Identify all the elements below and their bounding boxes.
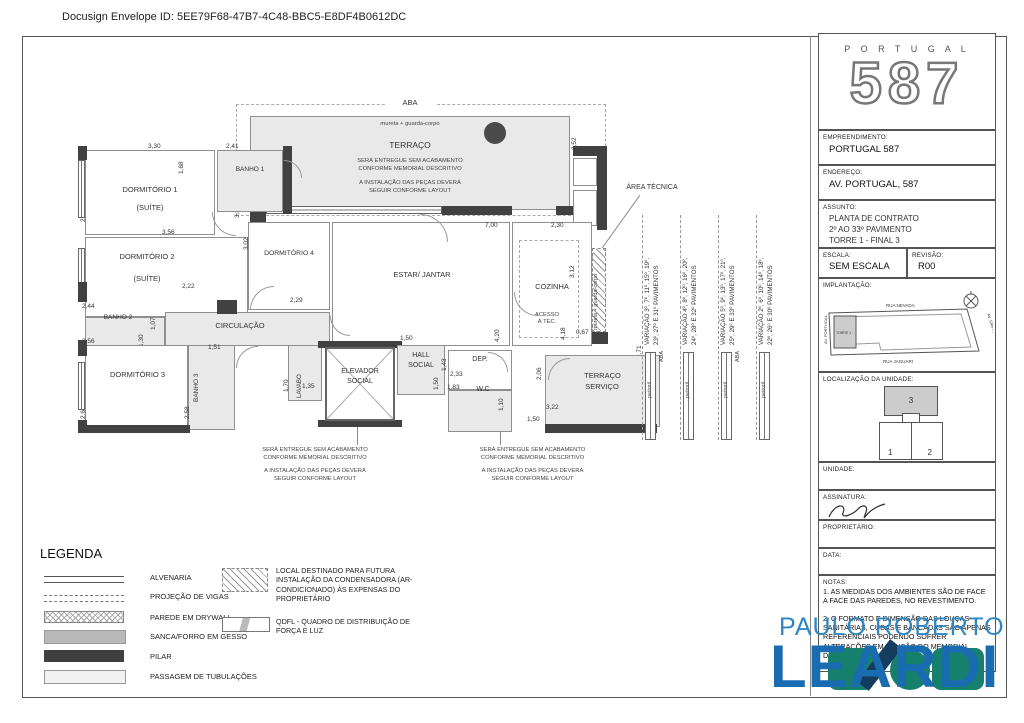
dim: 1,35	[302, 383, 315, 390]
plan-note: SERÁ ENTREGUE SEM ACABAMENTO	[240, 447, 390, 455]
legend-item: PAREDE EM DRYWALL	[150, 613, 232, 622]
endereco-box: ENDEREÇO: AV. PORTUGAL, 587	[818, 165, 996, 200]
field-label: IMPLANTAÇÃO:	[823, 282, 995, 289]
guide-line	[642, 215, 643, 440]
unit-3-block: 3	[884, 386, 938, 416]
wall-segment	[217, 300, 237, 314]
dorm1-suite-label: (SUÍTE)	[100, 203, 200, 212]
guide-line	[756, 215, 757, 440]
field-label: UNIDADE:	[823, 466, 995, 473]
wall-segment	[545, 424, 657, 433]
wall-segment	[78, 146, 87, 160]
dim: 0,67	[576, 329, 589, 336]
estar-label: ESTAR/ JANTAR	[372, 270, 472, 279]
legend-symbol-alvenaria	[44, 576, 124, 583]
area-tecnica-label: ÁREA TÉCNICA	[616, 184, 688, 192]
shaft	[573, 190, 597, 226]
aba-vertical-label: ABA	[735, 342, 741, 362]
field-value: AV. PORTUGAL, 587	[829, 179, 995, 190]
dim: 3,12	[569, 254, 576, 278]
legend-extra-item: LOCAL DESTINADO PARA FUTURA INSTALAÇÃO D…	[276, 566, 416, 603]
brand-number: 587	[819, 54, 995, 115]
dim: 1,83	[447, 384, 460, 391]
field-value: 2º AO 33º PAVIMENTO	[829, 225, 995, 234]
plan-note: SERÁ ENTREGUE SEM ACABAMENTO	[455, 447, 610, 455]
guide-line	[718, 215, 719, 440]
elevador-label: ELEVADOR	[328, 368, 392, 376]
data-box: DATA:	[818, 548, 996, 575]
variacao-label: 23º, 27º E 31º PAVIMENTOS	[654, 215, 660, 345]
dorm2-suite-label: (SUÍTE)	[97, 274, 197, 283]
plan-note: CONFORME MEMORIAL DESCRITIVO	[455, 455, 610, 463]
dim: 4,20	[494, 318, 501, 342]
proprietario-box: PROPRIETÁRIO:	[818, 520, 996, 548]
dim: 1,50	[433, 366, 440, 390]
signature	[827, 501, 897, 521]
field-value: R00	[918, 261, 995, 272]
variacao-label: VARIAÇÃO 4º, 8º, 12º, 16º, 20º,	[683, 215, 689, 345]
unit-divider	[911, 423, 912, 459]
watermark-line2: LEARDI	[770, 632, 999, 701]
legend-item: ALVENARIA	[150, 573, 192, 582]
banho3-label: BANHO 3	[193, 356, 201, 420]
peitoril-label: peitoril	[647, 368, 653, 398]
document-page: Docusign Envelope ID: 5EE79F68-47B7-4C48…	[0, 0, 1024, 723]
assinatura-box: ASSINATURA:	[818, 490, 996, 520]
cozinha-label: COZINHA	[522, 282, 582, 291]
wall-segment	[78, 282, 87, 302]
leader-line	[357, 427, 358, 445]
variacao-label: VARIAÇÃO 2º, 6º, 10º, 14º, 18º,	[759, 215, 765, 345]
terraco-servico-label: TERRAÇO	[570, 371, 635, 380]
wall-segment	[283, 146, 292, 214]
plan-note: SEGUIR CONFORME LAYOUT	[455, 476, 610, 484]
plan-note: A INSTALAÇÃO DAS PEÇAS DEVERÁ	[455, 468, 610, 476]
dim: 2,22	[182, 283, 195, 290]
field-label: LOCALIZAÇÃO DA UNIDADE:	[823, 376, 995, 383]
legend-symbol-pilar	[44, 650, 124, 662]
logo-box: P O R T U G A L 587	[818, 33, 996, 130]
terraco-note-line: SERÁ ENTREGUE SEM ACABAMENTO	[320, 158, 500, 166]
peitoril-label: peitoril	[723, 368, 729, 398]
street-left-label: AV. PORTUGAL	[823, 314, 828, 344]
legend-symbol-qdfl	[222, 617, 270, 632]
legend-item: PASSAGEM DE TUBULAÇÕES	[150, 672, 257, 681]
dim: 3,56	[162, 229, 175, 236]
circulacao-label: CIRCULAÇÃO	[185, 321, 295, 330]
legend-item: PROJEÇÃO DE VIGAS	[150, 592, 229, 601]
units-1-2-block: 1 2	[879, 422, 943, 460]
hall-label: HALL	[399, 352, 443, 360]
dim: 2,44	[82, 303, 95, 310]
wall-segment	[592, 332, 608, 344]
dim: 7,00	[485, 222, 498, 229]
title-block-divider	[810, 36, 811, 696]
empreendimento-box: EMPREENDIMENTO: PORTUGAL 587	[818, 130, 996, 165]
window-strip	[266, 206, 442, 214]
variacao-label: VARIAÇÃO 5º, 9º, 13º, 17º, 21º,	[721, 215, 727, 345]
dim: 2,33	[450, 371, 463, 378]
field-label: NOTAS:	[823, 579, 995, 586]
tower-label: TORRE 1	[836, 331, 851, 335]
revisao-box: REVISÃO: R00	[907, 248, 996, 278]
dorm2-label: DORMITÓRIO 2	[92, 252, 202, 261]
legend-symbol-sanca	[44, 630, 126, 644]
field-label: DATA:	[823, 552, 995, 559]
variacao-label: 22º, 26º E 30º PAVIMENTOS	[768, 215, 774, 345]
terraco-label: TERRAÇO	[355, 140, 465, 150]
field-label: ASSUNTO:	[823, 204, 995, 211]
unidade-box: UNIDADE:	[818, 462, 996, 490]
wall-segment	[78, 340, 87, 356]
terraco-note-line: A INSTALAÇÃO DAS PEÇAS DEVERÁ	[320, 180, 500, 188]
field-label: ENDEREÇO:	[823, 169, 995, 176]
dim: 1,07	[150, 308, 157, 330]
dim: 1,50	[527, 416, 540, 423]
room-lavabo	[288, 345, 322, 401]
legend-extra-item: QDFL - QUADRO DE DISTRIBUIÇÃO DE FORÇA E…	[276, 617, 426, 636]
docusign-envelope-id: Docusign Envelope ID: 5EE79F68-47B7-4C48…	[62, 11, 406, 23]
escala-box: ESCALA: SEM ESCALA	[818, 248, 907, 278]
wall-segment	[442, 206, 512, 215]
plan-note: CONFORME MEMORIAL DESCRITIVO	[240, 455, 390, 463]
site-plan: TORRE 1 RUA NEVADA RUA JAGUARI AV. PORTU…	[821, 289, 993, 367]
field-value: SEM ESCALA	[829, 261, 906, 272]
wall-segment	[85, 425, 190, 433]
dim: 3,30	[148, 143, 161, 150]
assunto-box: ASSUNTO: PLANTA DE CONTRATO 2º AO 33º PA…	[818, 200, 996, 248]
guide-line	[680, 215, 681, 440]
dim: 1,68	[178, 152, 185, 174]
field-value: PLANTA DE CONTRATO	[829, 214, 995, 223]
aba-label: ABA	[385, 98, 435, 107]
field-label: ASSINATURA:	[823, 494, 995, 501]
dim: 1,70	[283, 368, 290, 392]
dim: 1,30	[138, 325, 145, 347]
legend-item: PILAR	[150, 652, 172, 661]
field-label: REVISÃO:	[912, 252, 995, 259]
aba-vertical-label: ABA	[659, 342, 665, 362]
terraco-servico-label: SERVIÇO	[572, 382, 632, 391]
window-strip	[78, 362, 85, 410]
variacao-label: 24º, 28º E 32º PAVIMENTOS	[692, 215, 698, 345]
field-label: EMPREENDIMENTO:	[823, 134, 995, 141]
lavabo-label: LAVABO	[296, 352, 303, 398]
dim: 2,06	[536, 356, 543, 380]
dim: 1,43	[441, 349, 448, 371]
field-value: TORRE 1 - FINAL 3	[829, 236, 995, 245]
dim: 3,02	[243, 226, 250, 250]
dim: 2,58	[184, 395, 191, 419]
dorm4-label: DORMITÓRIO 4	[250, 250, 328, 258]
legend-item: SANCA/FORRO EM GESSO	[150, 632, 247, 641]
leader-line	[500, 432, 501, 445]
round-column	[484, 122, 506, 144]
dim: 2,30	[551, 222, 564, 229]
wall-segment	[78, 420, 87, 433]
banho2-label: BANHO 2	[88, 314, 148, 322]
legend-symbol-tubulacoes	[44, 670, 126, 684]
dim: 1,51	[208, 344, 221, 351]
variacao-label: 25º, 29º E 33º PAVIMENTOS	[730, 215, 736, 345]
legend-symbol-vigas	[44, 595, 124, 602]
legend-symbol-drywall	[44, 611, 124, 623]
peitoril-label: peitoril	[761, 368, 767, 398]
street-top-label: RUA NEVADA	[886, 303, 915, 308]
shaft	[573, 158, 597, 186]
variacao-label: VARIAÇÃO 3º, 7º, 11º, 15º, 19º,	[645, 215, 651, 345]
legend-title: LEGENDA	[40, 546, 102, 561]
mureta-right-label: mureta + guarda-corpo	[593, 252, 599, 330]
window-strip	[78, 160, 85, 218]
banho1-label: BANHO 1	[220, 166, 280, 174]
terraco-note-line: SEGUIR CONFORME LAYOUT	[320, 188, 500, 196]
unit-number: 2	[928, 448, 932, 457]
room-dormitorio-3	[85, 345, 188, 430]
dorm1-label: DORMITÓRIO 1	[100, 185, 200, 194]
leader-line	[595, 193, 645, 255]
dim: 2,29	[290, 297, 303, 304]
implantacao-box: IMPLANTAÇÃO: TORRE 1 RUA NEVADA RUA JAGU…	[818, 278, 996, 372]
terraco-note-line: CONFORME MEMORIAL DESCRITIVO	[320, 166, 500, 174]
field-label: PROPRIETÁRIO:	[823, 524, 995, 531]
field-value: PORTUGAL 587	[829, 144, 995, 155]
street-right-label: AV. SANTO AMARO	[986, 313, 993, 349]
dorm3-label: DORMITÓRIO 3	[90, 370, 185, 379]
acesso-tec-label: Á TEC.	[532, 319, 562, 327]
peitoril-label: peitoril	[685, 368, 691, 398]
room-banho-1	[217, 150, 283, 212]
elevador-label: SOCIAL	[328, 378, 392, 386]
mureta-label: mureta + guarda-corpo	[330, 121, 490, 129]
plan-note: A INSTALAÇÃO DAS PEÇAS DEVERÁ	[240, 468, 390, 476]
street-bottom-label: RUA JAGUARI	[883, 359, 913, 364]
field-label: ESCALA:	[823, 252, 906, 259]
wc-label: W.C	[468, 386, 498, 394]
dim: 1,50	[400, 335, 413, 342]
dim: 2,41	[226, 143, 239, 150]
unit-number: 3	[909, 396, 913, 405]
legend-symbol-condensadora	[222, 568, 268, 592]
dim: 1,10	[498, 389, 505, 411]
dim: 3,22	[546, 404, 559, 411]
plan-note: SEGUIR CONFORME LAYOUT	[240, 476, 390, 484]
unit-number: 1	[888, 448, 892, 457]
nota-1: 1. AS MEDIDAS DOS AMBIENTES SÃO DE FACE …	[823, 587, 991, 606]
